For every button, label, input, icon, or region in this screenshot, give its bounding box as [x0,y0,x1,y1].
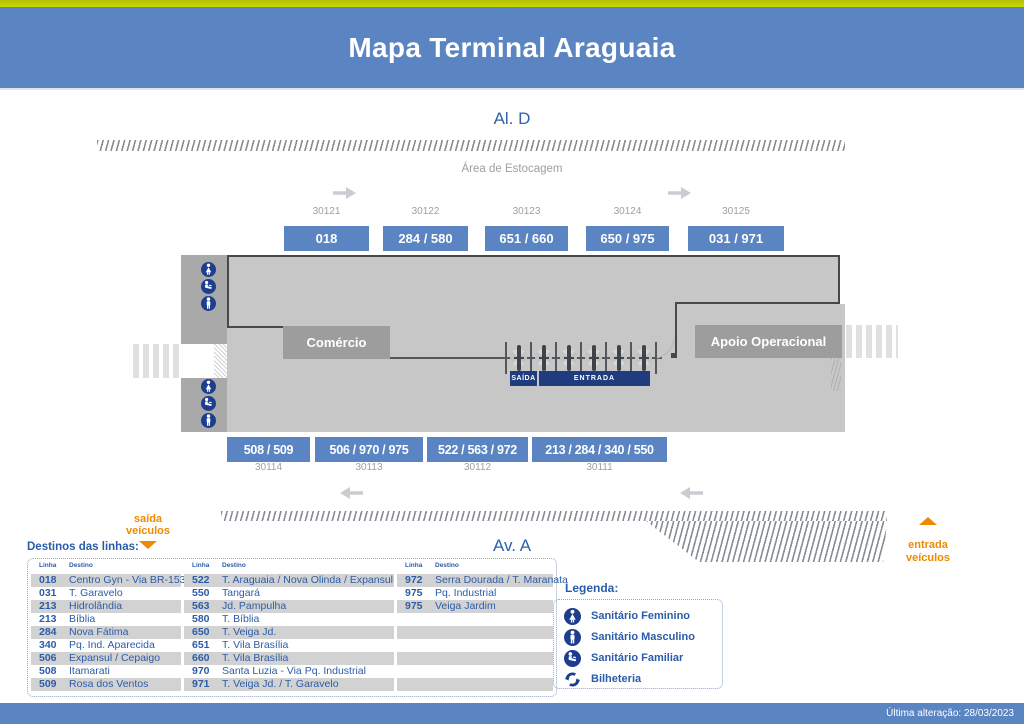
destination-row: 506Expansul / Cepaigo [31,652,181,665]
ticket-office-icon [564,671,581,688]
destination-row: 580T. Bíblia [184,613,394,626]
page-header: Mapa Terminal Araguaia [0,7,1024,90]
column-header-row: LinhaDestino [397,562,553,572]
destination-name: T. Bíblia [222,613,259,626]
destination-row: 508Itamarati [31,665,181,678]
line-number: 506 [39,652,57,665]
right-crosswalk [846,325,898,358]
destination-row [397,678,553,691]
platform-code: 30113 [315,462,423,473]
platform-code: 30125 [688,206,784,217]
column-header-line: Linha [39,562,56,569]
column-header-row: LinhaDestino [184,562,394,572]
destination-name: Pq. Ind. Aparecida [69,639,155,652]
line-badge: 031 / 971 [688,226,784,251]
line-number: 284 [39,626,57,639]
outline-step-right [675,302,840,304]
destination-row: 975Pq. Industrial [397,587,553,600]
turnstile-arm-tick [514,357,524,360]
legend-label: Sanitário Masculino [591,629,695,646]
flow-arrow-left-icon [679,486,703,500]
destination-row [397,626,553,639]
line-number: 650 [192,626,210,639]
turnstile-arm-tick [589,357,599,360]
storage-area-label: Área de Estocagem [0,163,1024,175]
destinations-title: Destinos das linhas: [27,541,139,553]
destination-row [397,665,553,678]
destination-row [397,652,553,665]
line-number: 975 [405,587,423,600]
destinations-table: LinhaDestino018Centro Gyn - Via BR-15303… [27,558,557,697]
legend-label: Bilheteria [591,671,641,688]
destination-row: 018Centro Gyn - Via BR-153 [31,574,181,587]
destination-name: Centro Gyn - Via BR-153 [69,574,186,587]
destination-row: 650T. Veiga Jd. [184,626,394,639]
destination-name: T. Veiga Jd. / T. Garavelo [222,678,339,691]
line-badge: 508 / 509 [227,437,310,462]
line-badge: 651 / 660 [485,226,568,251]
destination-name: T. Araguaia / Nova Olinda / Expansul [222,574,393,587]
destination-name: Hidrolândia [69,600,122,613]
destination-name: Pq. Industrial [435,587,496,600]
column-header-line: Linha [192,562,209,569]
turnstile-arm-tick [614,357,624,360]
female-restroom-icon [201,379,216,394]
exit-gate-badge: SAÍDA [510,371,537,386]
destination-row: 975Veiga Jardim [397,600,553,613]
destination-name: Santa Luzia - Via Pq. Industrial [222,665,366,678]
arrow-up-icon [919,517,937,525]
line-number: 971 [192,678,210,691]
line-badge: 506 / 970 / 975 [315,437,423,462]
destinations-column: LinhaDestino018Centro Gyn - Via BR-15303… [31,561,181,692]
platform-code: 30121 [284,206,369,217]
outline-step-left [227,326,284,328]
flow-arrow-right-icon [668,186,692,200]
column-header-row: LinhaDestino [31,562,181,572]
destination-name: T. Vila Brasília [222,652,288,665]
operations-label: Apoio Operacional [711,334,827,349]
male-restroom-icon [201,296,216,311]
legend-item: Sanitário Feminino [564,608,714,625]
line-number: 522 [192,574,210,587]
destination-name: T. Garavelo [69,587,123,600]
column-header-destination: Destino [435,562,459,569]
exit-gate-label: SAÍDA [511,375,535,382]
line-badge: 522 / 563 / 972 [427,437,528,462]
column-header-destination: Destino [69,562,93,569]
terminal-map-page: Mapa Terminal Araguaia Al. D Área de Est… [0,0,1024,724]
line-badge: 213 / 284 / 340 / 550 [532,437,667,462]
destination-name: T. Veiga Jd. [222,626,276,639]
line-number: 213 [39,613,57,626]
destination-row: 284Nova Fátima [31,626,181,639]
commerce-label: Comércio [307,335,367,350]
footer-bar: Última alteração: 28/03/2023 [0,703,1024,724]
female-restroom-icon [564,608,581,625]
destination-name: Serra Dourada / T. Maranata [435,574,568,587]
destination-row: 031T. Garavelo [31,587,181,600]
legend-box: Sanitário FemininoSanitário MasculinoSan… [553,599,723,689]
line-number: 018 [39,574,57,587]
family-restroom-icon [201,396,216,411]
vehicle-entrance: entrada veículos [896,504,960,565]
column-header-line: Linha [405,562,422,569]
destinations-column: LinhaDestino522T. Araguaia / Nova Olinda… [184,561,394,692]
turnstile-arm-tick [639,357,649,360]
line-number: 975 [405,600,423,613]
turnstile-arm-tick [539,357,549,360]
destination-row: 563Jd. Pampulha [184,600,394,613]
destination-name: Expansul / Cepaigo [69,652,160,665]
legend-item: Bilheteria [564,671,714,688]
legend-item: Sanitário Masculino [564,629,714,646]
turnstile-icon [555,342,580,374]
last-update-label: Última alteração: 28/03/2023 [886,708,1014,719]
male-restroom-icon [564,629,581,646]
page-title: Mapa Terminal Araguaia [0,7,1024,88]
line-number: 031 [39,587,57,600]
turnstile-row [505,342,657,374]
destination-row: 213Bíblia [31,613,181,626]
line-number: 580 [192,613,210,626]
platform-code: 30122 [383,206,468,217]
entrance-gate-badge: ENTRADA [539,371,650,386]
vehicle-exit-label: saída veículos [126,513,170,538]
destination-row: 660T. Vila Brasília [184,652,394,665]
turnstile-icon [630,342,657,374]
destination-row: 970Santa Luzia - Via Pq. Industrial [184,665,394,678]
top-road-hatch [97,140,845,151]
line-number: 508 [39,665,57,678]
outline-top [227,255,840,257]
destination-row: 509Rosa dos Ventos [31,678,181,691]
destination-name: Itamarati [69,665,110,678]
destination-row: 522T. Araguaia / Nova Olinda / Expansul [184,574,394,587]
line-number: 509 [39,678,57,691]
line-number: 213 [39,600,57,613]
destination-row: 550Tangará [184,587,394,600]
operations-area: Apoio Operacional [695,325,842,358]
flow-arrow-right-icon [333,186,357,200]
street-label-top: Al. D [0,109,1024,129]
turnstile-icon [580,342,605,374]
legend-title: Legenda: [565,581,618,595]
platform-code: 30124 [586,206,669,217]
destination-name: Bíblia [69,613,95,626]
male-restroom-icon [201,413,216,428]
line-number: 972 [405,574,423,587]
top-accent-bar [0,0,1024,7]
line-number: 340 [39,639,57,652]
legend-item: Sanitário Familiar [564,650,714,667]
legend-label: Sanitário Familiar [591,650,683,667]
turnstile-arm-tick [564,357,574,360]
line-badge: 284 / 580 [383,226,468,251]
destination-name: Tangará [222,587,260,600]
outline-left-vertical [227,255,229,328]
destination-name: Rosa dos Ventos [69,678,148,691]
family-restroom-icon [201,279,216,294]
flow-arrow-left-icon [339,486,363,500]
platform-code: 30111 [532,462,667,473]
destination-row: 651T. Vila Brasília [184,639,394,652]
line-number: 651 [192,639,210,652]
destination-name: Jd. Pampulha [222,600,286,613]
destination-row [397,613,553,626]
left-crosswalk [133,344,181,378]
destination-row [397,639,553,652]
destination-row: 213Hidrolândia [31,600,181,613]
legend-label: Sanitário Feminino [591,608,690,625]
female-restroom-icon [201,262,216,277]
line-badge: 650 / 975 [586,226,669,251]
turnstile-icon [605,342,630,374]
destination-row: 340Pq. Ind. Aparecida [31,639,181,652]
destination-row: 972Serra Dourada / T. Maranata [397,574,553,587]
turnstile-icon [505,342,530,374]
destination-name: Veiga Jardim [435,600,496,613]
family-restroom-icon [564,650,581,667]
column-header-destination: Destino [222,562,246,569]
platform-code: 30112 [427,462,528,473]
right-edge-hatch [831,358,841,391]
arrow-down-icon [139,541,157,549]
pedestrian-gap-hatch [214,344,227,378]
destination-name: T. Vila Brasília [222,639,288,652]
bottom-road-hatch [221,511,887,521]
turnstile-icon [530,342,555,374]
line-number: 550 [192,587,210,600]
line-badge: 018 [284,226,369,251]
destinations-column: LinhaDestino972Serra Dourada / T. Marana… [397,561,553,692]
terminal-body-upper [227,255,840,304]
platform-code: 30114 [227,462,310,473]
vehicle-entrance-label: entrada veículos [906,539,950,564]
line-number: 563 [192,600,210,613]
platform-code: 30123 [485,206,568,217]
destination-name: Nova Fátima [69,626,129,639]
outline-right-upper [838,255,840,304]
commerce-area: Comércio [283,326,390,359]
line-number: 660 [192,652,210,665]
entrance-gate-label: ENTRADA [574,375,615,382]
destination-row: 971T. Veiga Jd. / T. Garavelo [184,678,394,691]
line-number: 970 [192,665,210,678]
